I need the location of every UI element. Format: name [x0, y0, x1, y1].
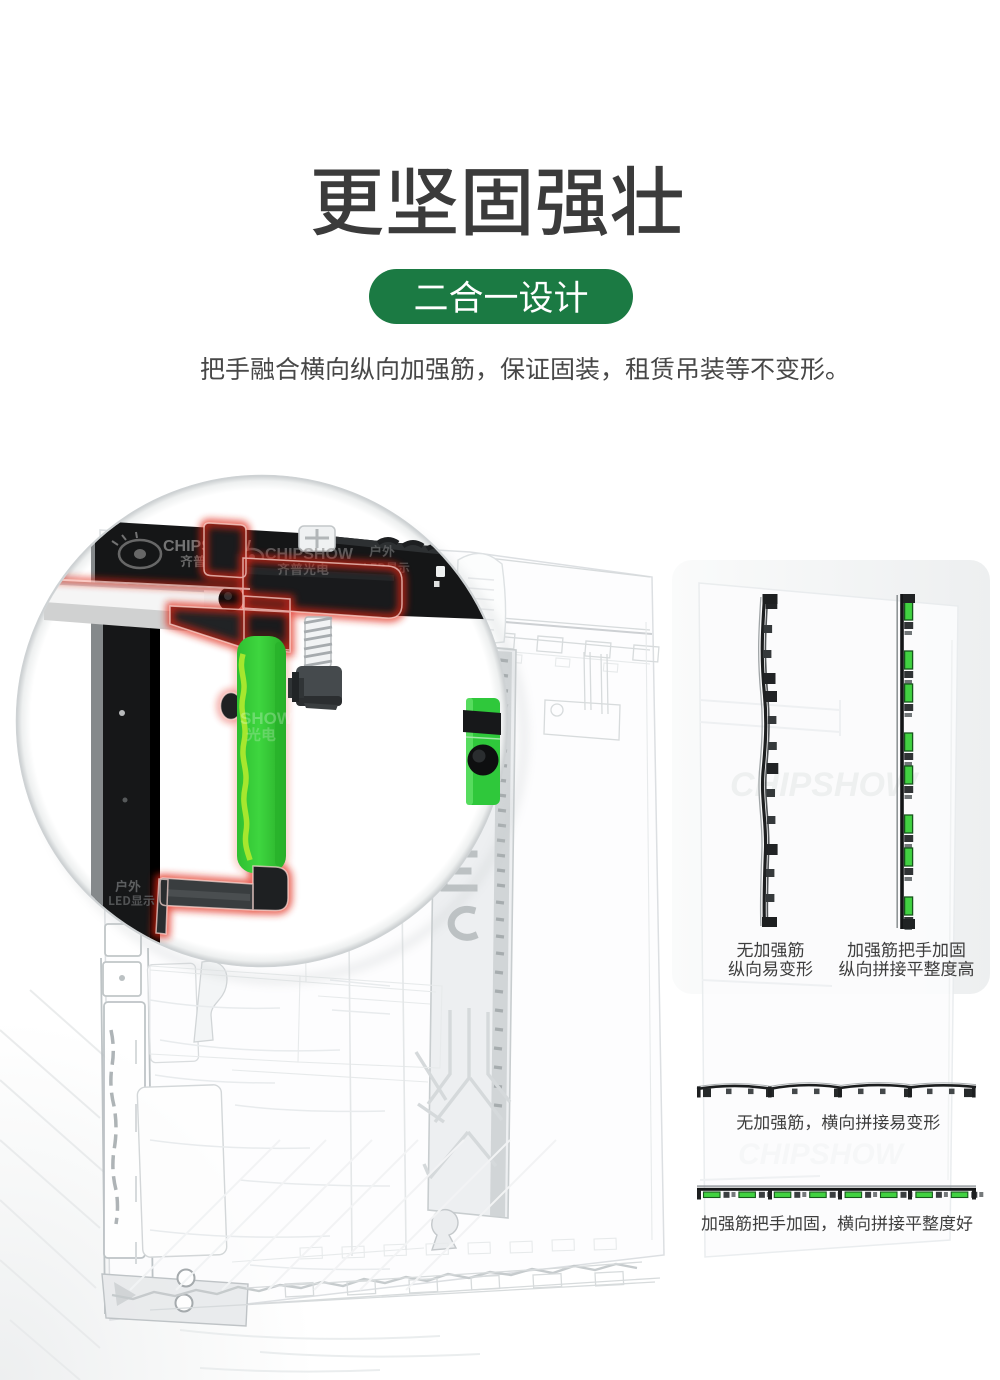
svg-text:SHOW: SHOW [240, 709, 294, 728]
svg-text:CHIPSHOW: CHIPSHOW [738, 1138, 906, 1171]
